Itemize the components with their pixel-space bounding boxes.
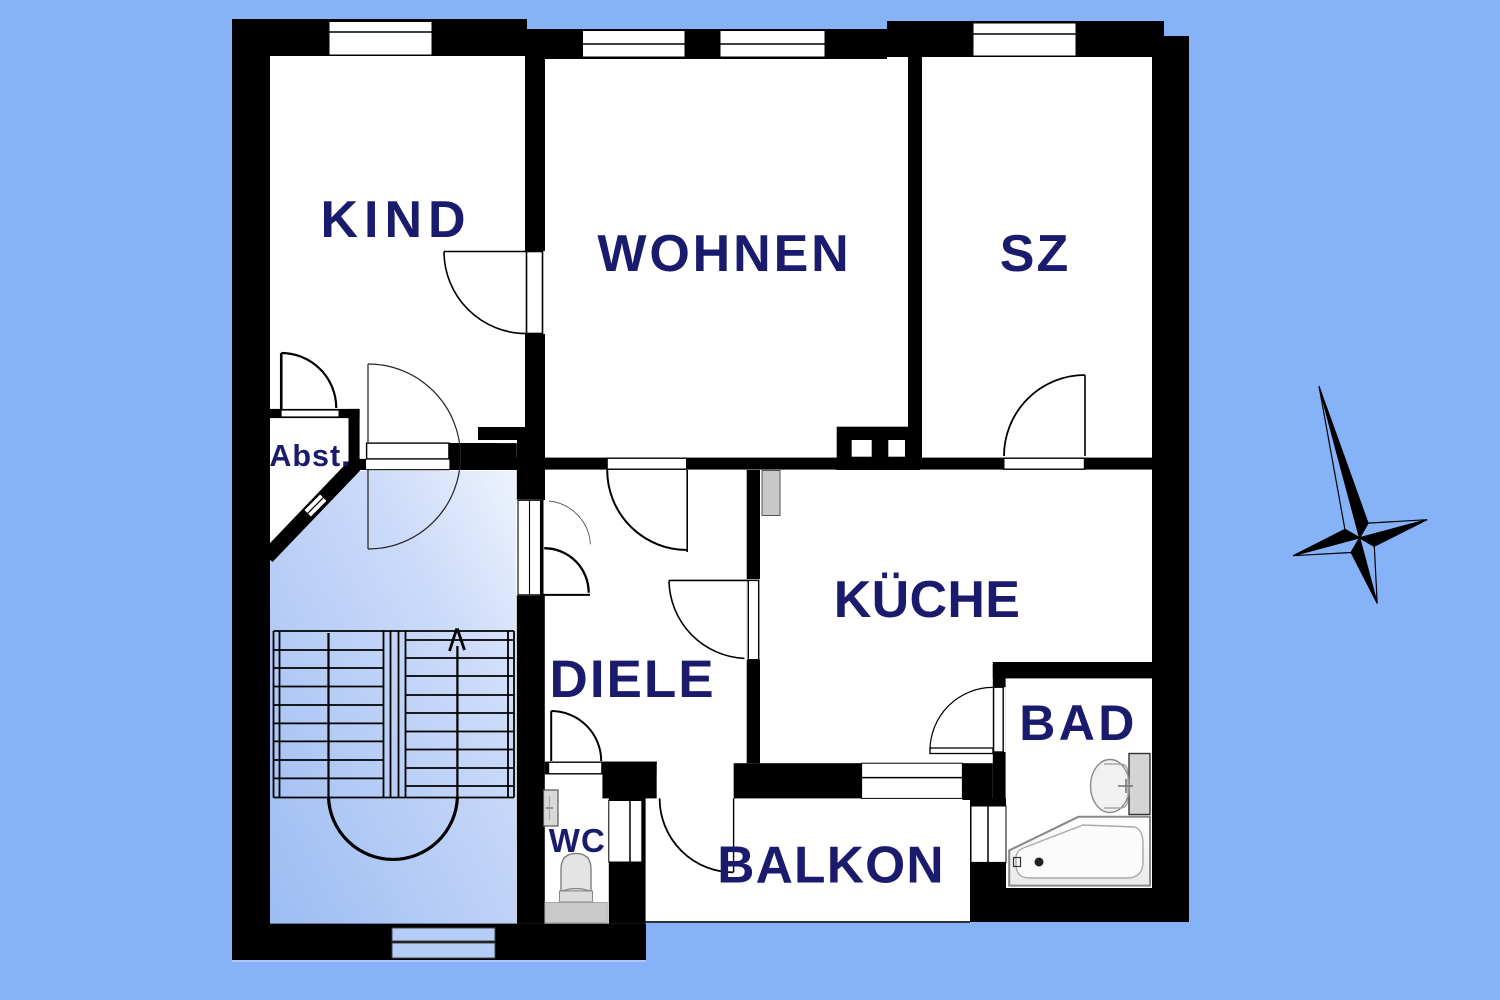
svg-text:Abst.: Abst. xyxy=(269,439,350,473)
svg-text:BALKON: BALKON xyxy=(717,835,944,893)
svg-text:WOHNEN: WOHNEN xyxy=(597,225,851,283)
svg-text:SZ: SZ xyxy=(1000,225,1070,283)
svg-text:DIELE: DIELE xyxy=(550,650,716,709)
svg-text:WC: WC xyxy=(549,822,606,859)
svg-text:KIND: KIND xyxy=(320,191,471,249)
svg-text:BAD: BAD xyxy=(1019,695,1138,751)
svg-text:KÜCHE: KÜCHE xyxy=(834,571,1020,629)
